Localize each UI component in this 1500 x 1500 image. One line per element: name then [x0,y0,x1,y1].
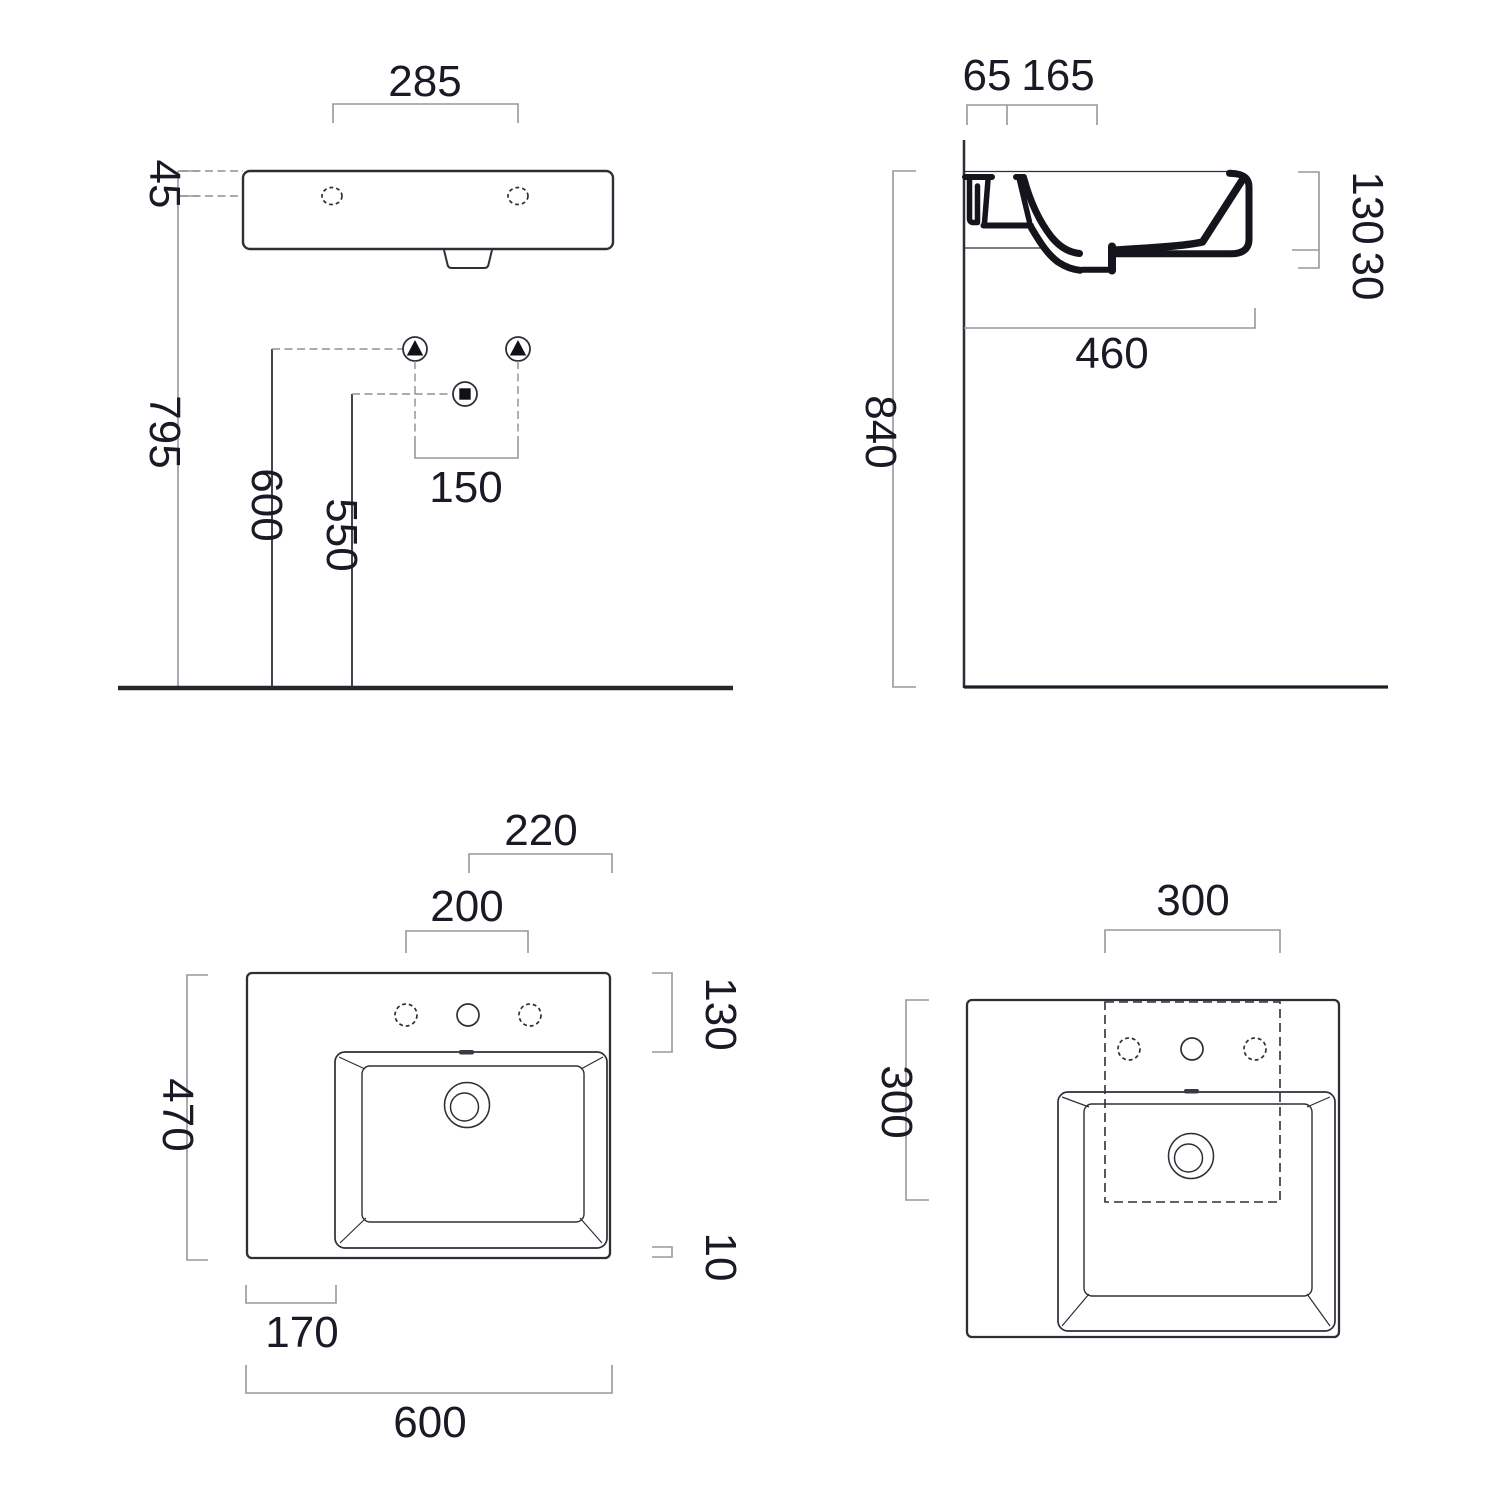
dim-side-front-lip: 30 [1343,252,1392,301]
plan-outer-outline [247,973,610,1258]
supply-icon-right [506,337,530,361]
dim-line-plan-hole-span [406,931,528,953]
dim-side-tap-center: 165 [1021,51,1094,100]
basin-front-outline [243,171,613,249]
dim-line-front-edge [652,1247,672,1257]
dim-line-left-shelf [246,1285,336,1303]
dim-front-waste-height: 550 [317,498,366,571]
plan2-overflow-slot [1184,1089,1199,1094]
dim-plan-hole-span: 200 [430,882,503,931]
technical-drawing-canvas: 285 45 795 600 550 [0,0,1500,1500]
dim-plan-center-to-edge: 220 [504,806,577,855]
dim-front-floor-to-rim: 795 [140,395,189,468]
dim-side-bowl-depth: 130 [1343,171,1392,244]
dim-plan-total-depth: 470 [153,1078,202,1151]
dim-line-total-width [246,1365,612,1393]
tap-area-plan-view: 300 300 [872,876,1339,1337]
dim-line-basin-depth [964,308,1255,328]
dim-plan-back-depth: 130 [696,977,745,1050]
dim-plan2-cutout-depth: 300 [872,1065,921,1138]
side-section-view: 65 165 840 460 130 30 [856,51,1392,688]
plan-view: 220 200 130 10 470 170 600 [153,806,745,1447]
plan2-outer-outline [967,1000,1339,1337]
dim-side-basin-depth: 460 [1075,329,1148,378]
dim-front-supply-span: 150 [429,463,502,512]
dim-plan-left-shelf: 170 [265,1308,338,1357]
dim-plan-total-width: 600 [393,1398,466,1447]
basin-section-profile [965,173,1249,270]
dim-front-hole-span: 285 [388,57,461,106]
dim-line-hole-span [333,104,518,123]
front-elevation-view: 285 45 795 600 550 [118,57,733,688]
dim-line-back-depth [652,973,672,1052]
dim-line-supply-span [415,438,518,458]
waste-outlet-icon [453,382,477,406]
dim-front-rim-to-holes: 45 [140,160,189,209]
hot-cold-supply-icon [403,337,427,361]
dim-front-supply-height: 600 [242,468,291,541]
overflow-slot [459,1050,474,1055]
dim-line-center-to-edge [469,854,612,873]
dim-side-mount-height: 840 [856,395,905,468]
washbasin-technical-drawing: 285 45 795 600 550 [0,0,1500,1500]
dim-line-bowl-depth [1292,172,1319,268]
dim-line-tap-offsets [967,105,1097,125]
dim-line-cutout-width [1105,930,1280,953]
dim-plan-front-edge: 10 [696,1233,745,1282]
dim-side-wall-gap: 65 [963,51,1012,100]
waste-outlet-front [444,250,492,268]
dim-plan2-cutout-width: 300 [1156,876,1229,925]
